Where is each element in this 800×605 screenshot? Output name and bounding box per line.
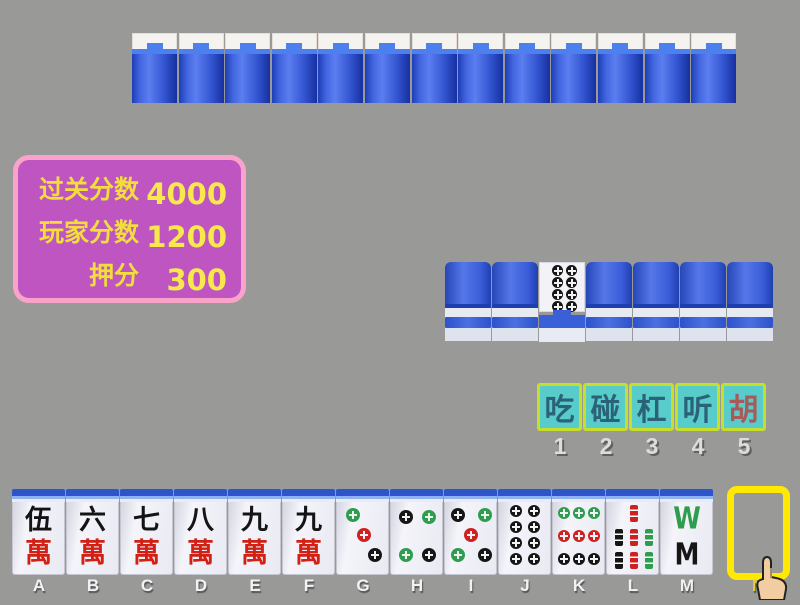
tile-top-edge <box>458 33 503 49</box>
tile-stripe <box>680 317 726 328</box>
tile-face: 八萬 <box>174 502 227 575</box>
tile-stripe <box>727 308 773 317</box>
tile-edge-band <box>539 315 585 328</box>
circle-dot <box>566 265 577 276</box>
tile-top-edge <box>598 33 643 49</box>
bamboo-stick <box>615 529 623 546</box>
hand-tile-i-5-circle[interactable] <box>444 489 497 575</box>
tile-back-edge <box>390 489 443 502</box>
tile-face: 六萬 <box>66 502 119 575</box>
hand-tile-letter: E <box>228 576 282 596</box>
hand-tile-a-5-wan[interactable]: 伍萬 <box>12 489 65 575</box>
opponent-tile-back <box>645 33 690 103</box>
score-row-stake: 押分 300 <box>18 256 241 299</box>
tile-back-top <box>633 262 679 308</box>
tile-back-edge <box>66 489 119 502</box>
tile-stripe <box>633 317 679 328</box>
opponent-tile-back <box>132 33 177 103</box>
wan-number-character: 六 <box>67 507 118 534</box>
meld-tile-back <box>492 262 538 346</box>
circle-dot <box>558 553 570 565</box>
opponent-tile-back <box>365 33 410 103</box>
opponent-tile-back <box>318 33 363 103</box>
bamboo-stick <box>645 552 653 569</box>
tile-back-tab <box>566 43 582 50</box>
opponent-tile-back <box>272 33 317 103</box>
meld-tile-back <box>680 262 726 346</box>
circle-dot <box>558 507 570 519</box>
circle-dot <box>399 548 413 562</box>
circle-dot <box>573 507 585 519</box>
bamboo-stick <box>630 505 638 522</box>
tile-face <box>552 502 605 575</box>
tile-stripe <box>680 308 726 317</box>
hand-tile-letter: B <box>66 576 120 596</box>
tile-stripe <box>633 308 679 317</box>
circle-dot <box>588 507 600 519</box>
draw-tile-slot[interactable] <box>727 486 790 580</box>
tile-face: WM <box>660 502 713 575</box>
circle-dot <box>451 548 465 562</box>
tile-stripe <box>492 317 538 328</box>
hand-tile-m-8-bamboo[interactable]: WM <box>660 489 713 575</box>
opponent-tile-back <box>598 33 643 103</box>
tile-top-edge <box>645 33 690 49</box>
tile-back-tab <box>379 43 395 50</box>
tile-stripe <box>586 328 632 341</box>
circle-dot <box>528 521 540 533</box>
tile-back-tab <box>333 43 349 50</box>
hand-tile-h-4-circle[interactable] <box>390 489 443 575</box>
tile-back-body <box>318 49 363 103</box>
opponent-tile-back <box>179 33 224 103</box>
tile-back-edge <box>282 489 335 502</box>
chi-button[interactable]: 吃 <box>537 383 582 431</box>
meld-tile-back <box>633 262 679 346</box>
tile-back-body <box>365 49 410 103</box>
tile-back-body <box>645 49 690 103</box>
wan-number-character: 九 <box>229 507 280 534</box>
hand-tile-letter: G <box>336 576 390 596</box>
gang-button[interactable]: 杠 <box>629 383 674 431</box>
wan-character: 萬 <box>229 540 280 567</box>
circle-dot <box>464 528 478 542</box>
tile-back-body <box>132 49 177 103</box>
circle-dot <box>451 508 465 522</box>
circle-dot <box>368 548 382 562</box>
tile-back-tab <box>426 43 442 50</box>
tile-back-body <box>691 49 736 103</box>
hand-tile-letter: M <box>660 576 714 596</box>
hand-tile-j-8-circle[interactable] <box>498 489 551 575</box>
tile-top-edge <box>272 33 317 49</box>
ting-button[interactable]: 听 <box>675 383 720 431</box>
tile-back-edge <box>498 489 551 502</box>
tile-back-tab <box>706 43 722 50</box>
tile-stripe <box>727 317 773 328</box>
wan-character: 萬 <box>67 540 118 567</box>
hand-tile-letter: L <box>606 576 660 596</box>
tile-face: 九萬 <box>282 502 335 575</box>
bamboo-stick <box>645 529 653 546</box>
circle-dot <box>510 521 522 533</box>
circle-dot <box>510 537 522 549</box>
tile-stripe <box>445 317 491 328</box>
tile-top-edge <box>318 33 363 49</box>
circle-dot <box>346 508 360 522</box>
circle-dot <box>566 277 577 288</box>
meld-tile-face-8-circles <box>539 262 585 346</box>
tile-back-tab <box>193 43 209 50</box>
hotkey-number: 5 <box>721 433 767 460</box>
tile-stripe <box>586 317 632 328</box>
tile-back-edge <box>120 489 173 502</box>
hand-tile-l-7-bamboo[interactable] <box>606 489 659 575</box>
tile-back-body <box>505 49 550 103</box>
circle-dot <box>399 510 413 524</box>
hand-tile-letter: H <box>390 576 444 596</box>
opponent-tile-back <box>505 33 550 103</box>
tile-top-edge <box>412 33 457 49</box>
hand-tile-letter: K <box>552 576 606 596</box>
tile-back-edge <box>660 489 713 502</box>
hotkey-number: 3 <box>629 433 675 460</box>
tile-back-body <box>458 49 503 103</box>
hand-tile-letter: F <box>282 576 336 596</box>
tile-back-body <box>179 49 224 103</box>
circle-dot <box>422 548 436 562</box>
hand-tile-letter: C <box>120 576 174 596</box>
tile-face <box>390 502 443 575</box>
tile-back-body <box>225 49 270 103</box>
tile-face <box>498 502 551 575</box>
circle-dot <box>528 505 540 517</box>
tile-top-edge <box>132 33 177 49</box>
wan-number-character: 八 <box>175 507 226 534</box>
tile-stripe <box>445 308 491 317</box>
bamboo-stick <box>630 529 638 546</box>
circle-dot <box>573 553 585 565</box>
opponent-tile-row <box>132 33 738 103</box>
bamboo-m-shape: M <box>661 540 712 570</box>
hotkey-number: 2 <box>583 433 629 460</box>
tile-back-edge <box>228 489 281 502</box>
opponent-tile-back <box>551 33 596 103</box>
tile-stripe <box>727 328 773 341</box>
tile-face: 九萬 <box>228 502 281 575</box>
tile-stripe <box>445 328 491 341</box>
opponent-tile-back <box>691 33 736 103</box>
tile-back-tab <box>519 43 535 50</box>
stake-value: 300 <box>139 263 227 297</box>
circle-dot <box>552 265 563 276</box>
score-row-pass: 过关分数 4000 <box>18 170 241 213</box>
wan-character: 萬 <box>175 540 226 567</box>
bamboo-stick <box>615 552 623 569</box>
tile-back-body <box>551 49 596 103</box>
meld-tile-back <box>445 262 491 346</box>
tile-back-edge <box>336 489 389 502</box>
tile-top-edge <box>691 33 736 49</box>
hand-tile-letter: J <box>498 576 552 596</box>
hand-tile-letter: D <box>174 576 228 596</box>
tile-back-edge <box>12 489 65 502</box>
hand-tile-d-8-wan[interactable]: 八萬 <box>174 489 227 575</box>
hand-tile-g-3-circle[interactable] <box>336 489 389 575</box>
stake-label: 押分 <box>89 256 139 292</box>
circle-dot <box>552 277 563 288</box>
circle-dot <box>528 537 540 549</box>
score-row-player: 玩家分数 1200 <box>18 213 241 256</box>
tile-back-top <box>680 262 726 308</box>
action-hotkey-row: 12345 <box>537 433 767 460</box>
pass-score-label: 过关分数 <box>39 170 139 206</box>
tile-top-edge <box>225 33 270 49</box>
bamboo-w-shape: W <box>661 504 712 534</box>
wan-character: 萬 <box>283 540 334 567</box>
circle-dot <box>588 530 600 542</box>
hand-tile-b-6-wan[interactable]: 六萬 <box>66 489 119 575</box>
tile-face <box>539 262 585 312</box>
meld-tile-back <box>727 262 773 346</box>
wan-number-character: 九 <box>283 507 334 534</box>
draw-slot-letter: N <box>733 576 783 596</box>
tile-back-body <box>412 49 457 103</box>
tile-back-top <box>586 262 632 308</box>
hand-tile-letter: I <box>444 576 498 596</box>
tile-back-top <box>445 262 491 308</box>
circle-dot <box>478 508 492 522</box>
player-score-value: 1200 <box>139 220 227 254</box>
tile-top-edge <box>179 33 224 49</box>
tile-back-body <box>272 49 317 103</box>
pass-score-value: 4000 <box>139 177 227 211</box>
tile-face <box>444 502 497 575</box>
circle-dot <box>588 553 600 565</box>
opponent-tile-back <box>458 33 503 103</box>
circle-dot <box>566 289 577 300</box>
tile-stripe <box>586 308 632 317</box>
meld-tile-row <box>445 262 774 346</box>
tile-back-edge <box>606 489 659 502</box>
tile-back-top <box>492 262 538 308</box>
score-panel: 过关分数 4000 玩家分数 1200 押分 300 <box>13 155 246 303</box>
tile-stripe <box>492 328 538 341</box>
action-bar: 吃碰杠听胡 <box>537 383 767 431</box>
hu-button[interactable]: 胡 <box>721 383 766 431</box>
bamboo-stick <box>630 552 638 569</box>
circle-dot <box>558 530 570 542</box>
tile-top-edge <box>551 33 596 49</box>
tile-face: 七萬 <box>120 502 173 575</box>
tile-face <box>336 502 389 575</box>
tile-back-tab <box>659 43 675 50</box>
circle-dot <box>510 553 522 565</box>
wan-number-character: 七 <box>121 507 172 534</box>
circle-dot <box>422 510 436 524</box>
circle-dot <box>552 289 563 300</box>
circle-dot <box>573 530 585 542</box>
tile-back-body <box>598 49 643 103</box>
hotkey-number: 4 <box>675 433 721 460</box>
tile-face <box>606 502 659 575</box>
wan-character: 萬 <box>121 540 172 567</box>
tile-back-edge <box>444 489 497 502</box>
tile-back-top <box>727 262 773 308</box>
circle-dot <box>478 548 492 562</box>
opponent-tile-back <box>225 33 270 103</box>
tile-base <box>539 328 585 342</box>
hand-tile-e-9-wan[interactable]: 九萬 <box>228 489 281 575</box>
tile-stripe <box>492 308 538 317</box>
hand-tile-letter: A <box>12 576 66 596</box>
tile-back-edge <box>552 489 605 502</box>
tile-top-edge <box>365 33 410 49</box>
player-score-label: 玩家分数 <box>39 213 139 249</box>
tile-face: 伍萬 <box>12 502 65 575</box>
circle-dot <box>357 528 371 542</box>
hand-tile-c-7-wan[interactable]: 七萬 <box>120 489 173 575</box>
hotkey-number: 1 <box>537 433 583 460</box>
meld-tile-back <box>586 262 632 346</box>
opponent-tile-back <box>412 33 457 103</box>
hand-tile-k-9-circle[interactable] <box>552 489 605 575</box>
tile-stripe <box>633 328 679 341</box>
hand-tile-f-9-wan[interactable]: 九萬 <box>282 489 335 575</box>
tile-back-tab <box>240 43 256 50</box>
circle-dot <box>510 505 522 517</box>
peng-button[interactable]: 碰 <box>583 383 628 431</box>
circle-dot <box>528 553 540 565</box>
tile-back-tab <box>286 43 302 50</box>
tile-back-edge <box>174 489 227 502</box>
wan-number-character: 伍 <box>13 507 64 534</box>
tile-back-tab <box>612 43 628 50</box>
tile-back-tab <box>473 43 489 50</box>
tile-back-tab <box>147 43 163 50</box>
wan-character: 萬 <box>13 540 64 567</box>
tile-stripe <box>680 328 726 341</box>
tile-top-edge <box>505 33 550 49</box>
